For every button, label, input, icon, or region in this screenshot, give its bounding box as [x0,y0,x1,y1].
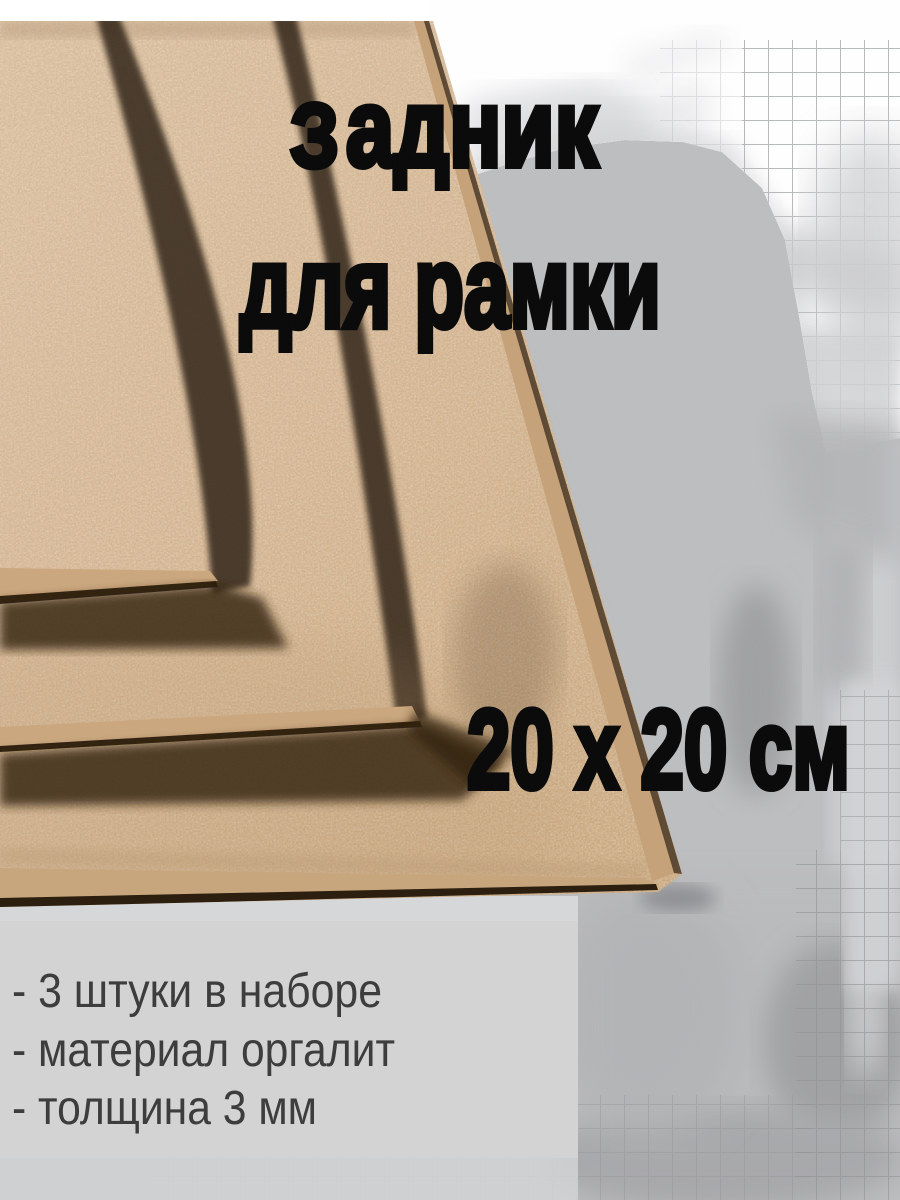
svg-text:- материал оргалит: - материал оргалит [12,1024,395,1077]
svg-text:З: З [290,86,339,187]
svg-text:- 3 штуки в наборе: - 3 штуки в наборе [12,965,382,1018]
svg-text:- толщина 3 мм: - толщина 3 мм [12,1082,317,1135]
svg-text:адник: адник [346,67,599,190]
svg-text:для рамки: для рамки [240,222,661,352]
svg-text:20 х 20 см: 20 х 20 см [467,687,850,812]
